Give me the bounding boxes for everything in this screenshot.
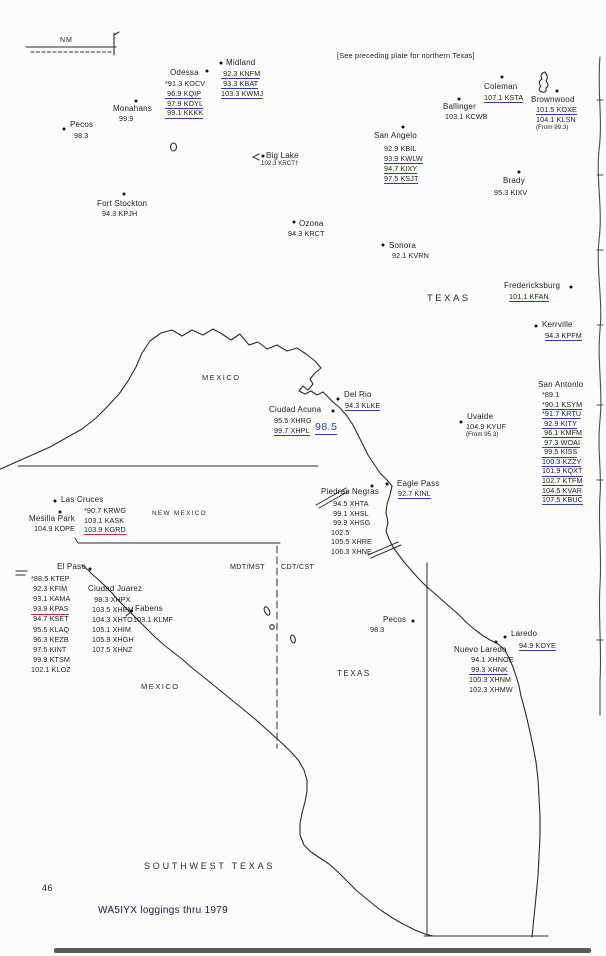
- station-text: 105.9 XHGH: [92, 636, 134, 644]
- station-text: 103.1 KASK: [84, 517, 124, 525]
- city-san-antonio-station-9: 102.7 KTFM: [542, 477, 583, 486]
- city-del-rio-station-0: 94.3 KLKE: [345, 402, 380, 411]
- city-del-rio-name: Del Rio: [344, 391, 372, 399]
- station-text: 94.3 KLKE: [345, 402, 380, 411]
- station-text: 105.5 XHRE: [331, 538, 372, 546]
- station-text: 92.1 KVRN: [392, 252, 429, 260]
- city-nuevo-laredo-name: Nuevo Laredo: [454, 646, 507, 654]
- city-fabens-station-0: 103.1 KLMF: [133, 616, 173, 624]
- city-san-antonio-station-4: 96.1 KMFM: [542, 429, 582, 438]
- city-ciudad-acuna-station-0: 95.5 XHRG: [274, 417, 312, 425]
- city-coleman-dot: [501, 76, 504, 79]
- small-lake-2: [270, 625, 275, 630]
- station-text: 96.3 KEZB: [31, 636, 69, 644]
- city-uvalde-station-0: 104.9 KYUF: [466, 423, 506, 431]
- city-monahans-station-0: 99.9: [119, 115, 133, 123]
- inset-top-border-2: [75, 538, 280, 543]
- station-text: 93.3 KBAT: [221, 80, 258, 89]
- station-text: 94.3 KPFM: [545, 332, 582, 341]
- city-nuevo-laredo-station-3: 102.3 XHMW: [469, 686, 513, 694]
- city-piedras-negras-station-3: 102.5: [331, 529, 350, 537]
- station-text: 103.3 KWMJ: [221, 90, 263, 99]
- city-pecos-dot: [63, 128, 66, 131]
- station-text: 94.1 XHNOE: [469, 656, 514, 664]
- city-ciudad-juarez-name: Ciudad Juarez: [88, 585, 142, 593]
- station-text: 99.1 KKKK: [165, 109, 203, 118]
- city-mesilla-park-dot: [59, 511, 62, 514]
- timezone-label-east: CDT/CST: [281, 563, 314, 570]
- city-midland-station-1: 93.3 KBAT: [221, 80, 258, 89]
- label-mexico-upper: MEXICO: [202, 374, 241, 382]
- city-piedras-negras-station-5: 106.3 XHNE: [331, 548, 372, 556]
- station-text: 101.5 KOXE: [536, 106, 577, 115]
- station-text: (From 95.3): [466, 432, 498, 439]
- city-kerrville-station-0: 94.3 KPFM: [545, 332, 582, 341]
- city-el-paso-station-5: 95.5 KLAQ: [31, 626, 69, 634]
- station-text: *91.3 KOCV: [165, 80, 205, 88]
- station-text: 96.9 KQIP: [165, 90, 201, 99]
- station-text: 104.9 KYUF: [466, 423, 506, 431]
- city-midland-station-0: 92.3 KNFM: [221, 70, 260, 79]
- station-text: 92.9 KBIL: [384, 145, 416, 153]
- city-sonora-name: Sonora: [389, 242, 416, 250]
- city-ciudad-acuna-name: Ciudad Acuna: [269, 406, 321, 414]
- station-text: 93.9 KWLW: [384, 155, 423, 164]
- city-sonora-dot: [382, 244, 385, 247]
- station-text: 107.5 XHNZ: [92, 646, 133, 654]
- city-odessa-station-0: *91.3 KOCV: [165, 80, 205, 88]
- plate-title: SOUTHWEST TEXAS: [144, 862, 275, 871]
- city-eagle-pass-dot: [386, 483, 389, 486]
- map-linework: [0, 0, 606, 956]
- city-san-angelo-station-2: 94.7 KIXY: [384, 165, 417, 174]
- city-ozona-dot: [293, 221, 296, 224]
- logger-caption: WA5IYX loggings thru 1979: [98, 906, 228, 916]
- city-san-angelo-station-3: 97.5 KSJT: [384, 175, 418, 184]
- city-fabens-name: Fabens: [135, 605, 163, 613]
- station-text: 96.1 KMFM: [542, 429, 582, 438]
- station-text: 104.9 KOPE: [34, 525, 75, 533]
- city-odessa-station-3: 99.1 KKKK: [165, 109, 203, 118]
- city-ciudad-acuna-dot: [332, 410, 335, 413]
- city-el-paso-name: El Paso: [57, 563, 86, 571]
- city-piedras-negras-station-4: 105.5 XHRE: [331, 538, 372, 546]
- label-texas-lower: TEXAS: [337, 670, 371, 678]
- city-fredericksburg-name: Fredericksburg: [504, 282, 560, 290]
- city-san-angelo-name: San Angelo: [374, 132, 417, 140]
- city-san-angelo-station-0: 92.9 KBIL: [384, 145, 416, 153]
- station-text: 99.9: [119, 115, 133, 123]
- city-ciudad-juarez-station-5: 107.5 XHNZ: [92, 646, 133, 654]
- city-el-paso-station-0: *88.5 KTEP: [31, 575, 70, 583]
- city-coleman-name: Coleman: [484, 83, 517, 91]
- station-text: 102.1 KLOZ: [31, 666, 71, 674]
- city-el-paso-station-1: 92.3 KFIM: [31, 585, 67, 593]
- city-san-antonio-station-2: *91.7 KRTU: [542, 410, 581, 419]
- city-midland-station-2: 103.3 KWMJ: [221, 90, 263, 99]
- city-nuevo-laredo-station-1: 99.3 XHNK: [469, 666, 508, 675]
- city-ciudad-juarez-station-1: 103.5 XHEM: [92, 606, 134, 614]
- city-el-paso-station-8: 99.9 KTSM: [31, 656, 70, 664]
- station-text: 94.7 KIXY: [384, 165, 417, 174]
- city-fort-stockton-name: Fort Stockton: [97, 200, 147, 208]
- station-text: *91.7 KRTU: [542, 410, 581, 419]
- city-pecos-name: Pecos: [70, 121, 93, 129]
- station-text: 103.9 KGRD: [84, 526, 126, 535]
- station-text: 97.5 KSJT: [384, 175, 418, 184]
- station-text: 107.5 KBUC: [542, 496, 583, 505]
- city-ciudad-acuna-station-1: 99.7 XHPL: [274, 427, 310, 436]
- city-big-lake-dot: [262, 155, 265, 158]
- city-san-angelo-station-1: 93.9 KWLW: [384, 155, 423, 164]
- station-text: 94.3 KPJH: [102, 210, 137, 218]
- timezone-label-west: MDT/MST: [230, 563, 265, 570]
- city-las-cruces-station-1: 103.1 KASK: [84, 517, 124, 525]
- city-brownwood-name: Brownwood: [531, 96, 575, 104]
- city-las-cruces-name: Las Cruces: [61, 496, 103, 504]
- left-edge-ticks: [16, 571, 27, 575]
- city-fabens-dot: [130, 610, 133, 613]
- plate-right-edge: [598, 57, 601, 715]
- city-piedras-negras-station-1: 99.1 XHSL: [331, 510, 369, 518]
- station-text: *88.5 KTEP: [31, 575, 70, 583]
- station-text: 95.5 XHRG: [274, 417, 312, 425]
- station-text: 103.5 XHEM: [92, 606, 134, 614]
- city-ciudad-juarez-station-4: 105.9 XHGH: [92, 636, 134, 644]
- station-text: 98.3: [370, 626, 384, 634]
- station-text: 101.1 KFAN: [509, 293, 549, 302]
- city-monahans-name: Monahans: [113, 105, 152, 113]
- city-sonora-station-0: 92.1 KVRN: [392, 252, 429, 260]
- city-fort-stockton-station-0: 94.3 KPJH: [102, 210, 137, 218]
- city-fredericksburg-dot: [570, 286, 573, 289]
- city-odessa-station-1: 96.9 KQIP: [165, 90, 201, 99]
- label-texas-upper: TEXAS: [427, 294, 471, 304]
- city-piedras-negras-station-0: 94.5 XHTA: [331, 500, 369, 508]
- city-uvalde-dot: [460, 421, 463, 424]
- station-text: 107.1 KSTA: [484, 94, 523, 103]
- city-brownwood-station-1: 104.1 KLSN: [536, 116, 576, 124]
- annotation-handwritten-98-5: 98.5: [315, 421, 337, 435]
- station-text: 94.3 KRCT: [288, 230, 324, 238]
- city-kerrville-dot: [535, 325, 538, 328]
- city-san-angelo-dot: [402, 126, 405, 129]
- station-text: *90.7 KRWG: [84, 507, 126, 515]
- city-uvalde-station-1: (From 95.3): [466, 432, 498, 439]
- city-ciudad-juarez-station-0: 98.3 XHPX: [92, 596, 131, 604]
- station-text: 103.1 KCWB: [445, 113, 488, 121]
- station-text: 94.7 KSET: [31, 615, 69, 623]
- station-text: 92.3 KFIM: [31, 585, 67, 593]
- city-nuevo-laredo-dot: [495, 641, 498, 644]
- city-el-paso-station-6: 96.3 KEZB: [31, 636, 69, 644]
- city-fredericksburg-station-0: 101.1 KFAN: [509, 293, 549, 302]
- label-new-mexico: NEW MEXICO: [152, 511, 207, 517]
- city-ballinger-dot: [458, 98, 461, 101]
- station-text: 98.3: [74, 132, 88, 140]
- small-lake-3: [290, 635, 296, 644]
- city-piedras-negras-dot: [371, 485, 374, 488]
- city-midland-name: Midland: [226, 59, 255, 67]
- page-number: 46: [42, 884, 53, 893]
- city-el-paso-station-9: 102.1 KLOZ: [31, 666, 71, 674]
- city-eagle-pass-name: Eagle Pass: [397, 480, 439, 488]
- label-nm: NM: [60, 37, 73, 44]
- city-pecos-2-dot: [412, 620, 415, 623]
- city-pecos-2-station-0: 98.3: [370, 626, 384, 634]
- city-las-cruces-station-0: *90.7 KRWG: [84, 507, 126, 515]
- station-text: *89.1: [542, 391, 559, 399]
- city-odessa-dot: [206, 70, 209, 73]
- city-kerrville-name: Kerrville: [542, 321, 573, 329]
- map-page: [See preceding plate for northern Texas]…: [0, 0, 606, 956]
- city-del-rio-dot: [337, 398, 340, 401]
- label-mexico-lower: MEXICO: [141, 683, 180, 691]
- station-text: 104.1 KLSN: [536, 116, 576, 124]
- city-las-cruces-dot: [54, 500, 57, 503]
- station-text: 99.3 XHNK: [469, 666, 508, 675]
- station-text: 100.3 XHNM: [469, 676, 511, 684]
- city-las-cruces-station-2: 103.9 KGRD: [84, 526, 126, 535]
- station-text: 102.7 KTFM: [542, 477, 583, 486]
- city-brownwood-station-2: (From 99.3): [536, 125, 568, 132]
- station-text: (From 99.3): [536, 125, 568, 132]
- city-brady-dot: [518, 171, 521, 174]
- city-ozona-station-0: 94.3 KRCT: [288, 230, 324, 238]
- city-brownwood-dot: [556, 90, 559, 93]
- city-eagle-pass-station-0: 92.7 KINL: [398, 490, 431, 499]
- city-el-paso-station-7: 97.5 KINT: [31, 646, 66, 654]
- lake-brownwood: [539, 72, 548, 92]
- city-san-antonio-station-0: *89.1: [542, 391, 559, 399]
- city-laredo-name: Laredo: [511, 630, 537, 638]
- note-preceding-plate: [See preceding plate for northern Texas]: [337, 52, 475, 59]
- station-text: 94.9 KOYE: [519, 642, 556, 651]
- station-text: 92.7 KINL: [398, 490, 431, 499]
- station-text: 99.9 XHSG: [331, 519, 370, 527]
- station-text: 102.5: [331, 529, 350, 537]
- big-lake-arrow: [253, 154, 259, 160]
- nm-border-corner: [114, 32, 119, 55]
- city-el-paso-dot: [89, 568, 92, 571]
- city-san-antonio-station-11: 107.5 KBUC: [542, 496, 583, 505]
- city-mesilla-park-station-0: 104.9 KOPE: [34, 525, 75, 533]
- city-pecos-2-name: Pecos: [383, 616, 406, 624]
- city-brownwood-station-0: 101.5 KOXE: [536, 106, 577, 115]
- station-text: 98.3 XHPX: [92, 596, 131, 604]
- station-text: 95.3 KIXV: [494, 189, 527, 197]
- city-ciudad-juarez-station-3: 105.1 XHIM: [92, 626, 131, 634]
- city-mesilla-park-name: Mesilla Park: [29, 515, 75, 523]
- city-nuevo-laredo-station-0: 94.1 XHNOE: [469, 656, 514, 664]
- station-text: 93.9 KPAS: [31, 605, 69, 614]
- city-ozona-name: Ozona: [299, 220, 324, 228]
- city-san-antonio-name: San Antonio: [538, 381, 583, 389]
- city-laredo-dot: [504, 636, 507, 639]
- map-circle-symbol: [171, 143, 177, 151]
- city-piedras-negras-name: Piedras Negras: [321, 488, 379, 496]
- city-el-paso-station-2: 93.1 KAMA: [31, 595, 70, 603]
- station-text: 102.3 KRCT†: [261, 161, 299, 168]
- city-monahans-dot: [135, 100, 138, 103]
- city-ballinger-name: Ballinger: [443, 103, 476, 111]
- city-midland-dot: [220, 62, 223, 65]
- city-pecos-station-0: 98.3: [74, 132, 88, 140]
- station-text: 104.3 XHTO: [92, 616, 133, 624]
- city-big-lake-station-0: 102.3 KRCT†: [261, 161, 299, 168]
- city-big-lake-name: Big Lake: [266, 152, 299, 160]
- station-text: 95.5 KLAQ: [31, 626, 69, 634]
- station-text: 92.3 KNFM: [221, 70, 260, 79]
- station-text: 94.5 XHTA: [331, 500, 369, 508]
- city-ballinger-station-0: 103.1 KCWB: [445, 113, 488, 121]
- station-text: 99.1 XHSL: [331, 510, 369, 518]
- station-text: 97.5 KINT: [31, 646, 66, 654]
- city-fort-stockton-dot: [123, 193, 126, 196]
- station-text: 102.3 XHMW: [469, 686, 513, 694]
- station-text: 99.7 XHPL: [274, 427, 310, 436]
- station-text: 106.3 XHNE: [331, 548, 372, 556]
- station-text: 103.1 KLMF: [133, 616, 173, 624]
- city-coleman-station-0: 107.1 KSTA: [484, 94, 523, 103]
- city-nuevo-laredo-station-2: 100.3 XHNM: [469, 676, 511, 684]
- city-el-paso-station-4: 94.7 KSET: [31, 615, 69, 623]
- small-lake-1: [263, 606, 271, 616]
- city-piedras-negras-station-2: 99.9 XHSG: [331, 519, 370, 527]
- city-brady-name: Brady: [503, 177, 525, 185]
- city-laredo-station-0: 94.9 KOYE: [519, 642, 556, 651]
- city-ciudad-juarez-station-2: 104.3 XHTO: [92, 616, 133, 624]
- city-brady-station-0: 95.3 KIXV: [494, 189, 527, 197]
- station-text: 105.1 XHIM: [92, 626, 131, 634]
- station-text: 99.9 KTSM: [31, 656, 70, 664]
- scan-edge-artifact: [54, 948, 591, 953]
- city-el-paso-station-3: 93.9 KPAS: [31, 605, 69, 614]
- station-text: 93.1 KAMA: [31, 595, 70, 603]
- city-odessa-name: Odessa: [170, 69, 199, 77]
- city-uvalde-name: Uvalde: [467, 413, 493, 421]
